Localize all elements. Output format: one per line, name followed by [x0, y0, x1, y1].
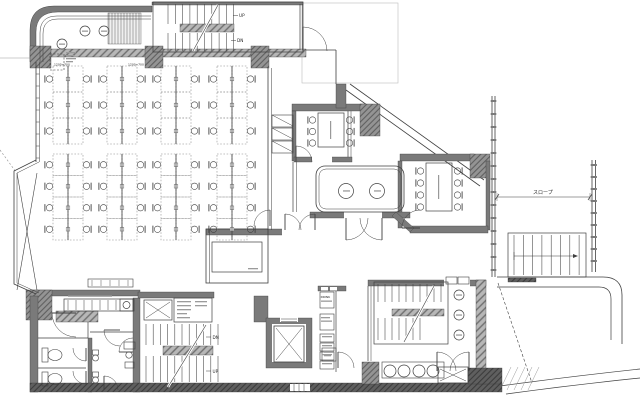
- chair: [247, 162, 253, 168]
- ramp-label: スロープ: [533, 190, 553, 196]
- chair: [454, 180, 460, 186]
- fence-tick: [491, 204, 497, 206]
- floor-plan-drawing: UP DN DN UP DRINK スロープ 1200×700 1200×700: [0, 0, 640, 400]
- micro-text: [321, 317, 330, 318]
- west-bay-wall: [14, 160, 36, 294]
- chair: [137, 102, 143, 108]
- chair: [210, 76, 216, 82]
- door-swing: [73, 371, 86, 384]
- desk: [68, 92, 83, 118]
- arrow-head: [573, 254, 578, 258]
- lounge-bench: [319, 169, 401, 209]
- work-table: [212, 242, 262, 272]
- micro-text: [330, 121, 331, 139]
- toilet-tank: [42, 348, 48, 362]
- chair: [83, 128, 89, 134]
- low-cabinet: [88, 279, 133, 287]
- chair: [210, 183, 216, 189]
- desk: [68, 118, 83, 144]
- desk: [68, 154, 83, 176]
- chair: [83, 183, 89, 189]
- chair: [100, 226, 106, 232]
- paving-hatch: [514, 367, 525, 390]
- chair: [154, 76, 160, 82]
- micro-text: [343, 190, 350, 191]
- desk: [161, 154, 176, 176]
- exterior-wall: [468, 368, 502, 384]
- micro-text: [177, 301, 191, 302]
- fence-tick: [491, 165, 497, 167]
- column: [362, 362, 379, 384]
- desk: [232, 66, 247, 92]
- desk: [53, 154, 68, 176]
- desk: [122, 176, 137, 198]
- fence-tick: [491, 178, 497, 180]
- rail-tick: [591, 212, 597, 214]
- chair: [210, 205, 216, 211]
- site-curve: [506, 378, 640, 394]
- micro-text: [321, 321, 332, 322]
- wall: [133, 298, 140, 392]
- desk: [217, 197, 232, 219]
- chair: [210, 128, 216, 134]
- chair: [100, 205, 106, 211]
- chair: [191, 102, 197, 108]
- micro-text: [321, 301, 332, 302]
- wall: [400, 154, 474, 161]
- rail-tick: [591, 200, 597, 202]
- desk: [68, 219, 83, 241]
- column: [30, 46, 51, 68]
- chair: [191, 205, 197, 211]
- desk: [217, 92, 232, 118]
- paving-hatch: [528, 367, 539, 390]
- desk: [161, 66, 176, 92]
- chair: [309, 140, 315, 146]
- chair: [154, 226, 160, 232]
- stool: [398, 365, 410, 377]
- micro-text: [68, 296, 112, 297]
- desk: [107, 154, 122, 176]
- desk: [161, 176, 176, 198]
- stool: [384, 365, 396, 377]
- chair: [191, 76, 197, 82]
- fence-tick: [491, 152, 497, 154]
- micro-text: [177, 313, 187, 314]
- door-swing: [360, 218, 382, 240]
- urinal: [93, 372, 99, 377]
- desk: [53, 92, 68, 118]
- chair: [100, 102, 106, 108]
- vending-unit: [320, 314, 334, 330]
- site-line: [0, 150, 16, 172]
- chair: [191, 183, 197, 189]
- chair: [46, 205, 52, 211]
- chair: [417, 180, 423, 186]
- desk: [68, 197, 83, 219]
- chair: [154, 183, 160, 189]
- kitchen-counter: [64, 299, 134, 311]
- desk: [217, 154, 232, 176]
- desk: [107, 176, 122, 198]
- urinal: [93, 377, 99, 383]
- wall: [486, 161, 490, 230]
- micro-text: [438, 175, 439, 199]
- desk: [122, 92, 137, 118]
- column: [360, 104, 380, 136]
- desk: [176, 154, 191, 176]
- rooms-layer: [14, 4, 469, 391]
- door-swing: [285, 214, 301, 230]
- desk: [176, 219, 191, 241]
- vending-unit: [320, 361, 334, 369]
- desk-note-right: 1200×700: [128, 63, 144, 67]
- chair: [100, 76, 106, 82]
- micro-text: [322, 336, 332, 337]
- rail-tick: [591, 188, 597, 190]
- rail-tick: [591, 236, 597, 238]
- wall: [152, 2, 303, 5]
- chair: [346, 140, 352, 146]
- chair: [309, 128, 315, 134]
- micro-text: [456, 314, 462, 315]
- desk: [107, 66, 122, 92]
- micro-text: [248, 268, 258, 269]
- exterior-wall: [30, 383, 502, 392]
- desk: [232, 176, 247, 198]
- stair-top-up-label: UP: [239, 13, 245, 18]
- paving-hatch: [507, 367, 518, 390]
- wall-opening: [330, 287, 337, 291]
- column: [145, 46, 163, 68]
- micro-text: [374, 190, 381, 191]
- micro-text: [322, 345, 332, 346]
- desk: [232, 118, 247, 144]
- chair: [210, 162, 216, 168]
- chair: [83, 226, 89, 232]
- fence-tick: [491, 243, 497, 245]
- desk: [232, 92, 247, 118]
- chair: [46, 183, 52, 189]
- chair: [83, 102, 89, 108]
- chair: [137, 205, 143, 211]
- rail-tick: [591, 260, 597, 262]
- chair: [247, 102, 253, 108]
- wall-opening: [312, 156, 332, 163]
- fence-tick: [491, 230, 497, 232]
- desk: [107, 118, 122, 144]
- chair: [137, 162, 143, 168]
- chair: [137, 226, 143, 232]
- door-swing: [303, 27, 327, 51]
- chair: [191, 162, 197, 168]
- desk-note-left: 1200×700: [54, 63, 70, 67]
- chair: [137, 128, 143, 134]
- fixture: [125, 362, 134, 368]
- chair: [46, 76, 52, 82]
- micro-text: [82, 31, 88, 32]
- floor-plan-canvas: UP DN DN UP DRINK スロープ 1200×700 1200×700: [0, 0, 640, 400]
- fence-tick: [491, 217, 497, 219]
- fence-tick: [491, 100, 497, 102]
- plan-line: [272, 128, 293, 139]
- stool: [413, 365, 425, 377]
- vending-unit: [320, 334, 334, 342]
- chair: [454, 192, 460, 198]
- fence-tick: [491, 256, 497, 258]
- micro-text: [177, 317, 190, 318]
- ramp-lower-edge: [497, 287, 611, 340]
- chair: [247, 205, 253, 211]
- stair-break-line: [168, 325, 206, 387]
- wall: [292, 111, 296, 161]
- fence-tick: [491, 191, 497, 193]
- plan-line: [272, 115, 293, 126]
- chair: [46, 128, 52, 134]
- chair: [137, 183, 143, 189]
- canopy-outline: [302, 3, 398, 83]
- wall: [138, 292, 214, 298]
- micro-text: [66, 55, 74, 56]
- chair: [83, 205, 89, 211]
- column: [251, 46, 269, 68]
- desk: [122, 66, 137, 92]
- micro-text: [177, 305, 191, 306]
- chair: [154, 128, 160, 134]
- chair: [154, 205, 160, 211]
- chair: [46, 226, 52, 232]
- fence-tick: [491, 126, 497, 128]
- toilet-bowl: [48, 350, 62, 361]
- micro-text: [66, 52, 76, 53]
- chair: [247, 183, 253, 189]
- fence-tick: [491, 139, 497, 141]
- door-swing: [437, 352, 456, 371]
- chair: [83, 76, 89, 82]
- desk: [217, 176, 232, 198]
- wall: [292, 104, 364, 111]
- plan-line: [272, 141, 293, 152]
- door-swing: [119, 338, 133, 352]
- desk: [161, 219, 176, 241]
- desk: [53, 197, 68, 219]
- micro-text: [322, 363, 332, 364]
- urinal: [93, 350, 99, 355]
- fixture: [126, 352, 132, 358]
- desk: [161, 118, 176, 144]
- desk: [68, 66, 83, 92]
- chair: [154, 162, 160, 168]
- chair: [247, 128, 253, 134]
- micro-text: [195, 305, 207, 306]
- site-curve: [500, 369, 640, 386]
- desk: [122, 219, 137, 241]
- desk: [176, 176, 191, 198]
- wall: [30, 296, 38, 392]
- stair-west-dn-label: DN: [213, 335, 219, 340]
- wall-opening: [321, 287, 328, 291]
- micro-text: [59, 44, 65, 45]
- chair: [417, 168, 423, 174]
- desk: [161, 197, 176, 219]
- door-swing: [104, 330, 120, 346]
- chair: [309, 117, 315, 123]
- door-swing: [338, 352, 354, 368]
- micro-text: [456, 334, 462, 335]
- chair: [210, 102, 216, 108]
- urinal: [93, 355, 99, 361]
- rail-tick: [591, 224, 597, 226]
- micro-text: [101, 31, 107, 32]
- fence-tick: [491, 269, 497, 271]
- desk: [232, 197, 247, 219]
- exterior-curb: [508, 278, 536, 282]
- stair-west-up-label: UP: [213, 369, 219, 374]
- desk: [161, 92, 176, 118]
- desk: [217, 118, 232, 144]
- chair: [247, 76, 253, 82]
- lounge-bench: [316, 166, 404, 212]
- micro-text: [324, 352, 333, 353]
- chair: [417, 204, 423, 210]
- rail-tick: [591, 176, 597, 178]
- desk: [217, 66, 232, 92]
- micro-text: [456, 294, 462, 295]
- desk: [232, 154, 247, 176]
- copy-room: [206, 229, 268, 283]
- desk: [53, 118, 68, 144]
- desk: [122, 118, 137, 144]
- wall-opening: [282, 228, 318, 236]
- rail-tick: [591, 164, 597, 166]
- chair: [191, 226, 197, 232]
- door-swing: [450, 352, 469, 371]
- sink-bowl: [123, 302, 130, 309]
- chair: [83, 162, 89, 168]
- rail-tick: [591, 248, 597, 250]
- chair: [191, 128, 197, 134]
- desk: [68, 176, 83, 198]
- desk: [176, 92, 191, 118]
- door-swing: [73, 348, 86, 361]
- chair: [137, 76, 143, 82]
- desk: [176, 197, 191, 219]
- chair: [346, 117, 352, 123]
- chair: [154, 102, 160, 108]
- desk: [122, 197, 137, 219]
- vending-drink-label: DRINK: [321, 295, 332, 299]
- desk: [176, 66, 191, 92]
- chair: [100, 162, 106, 168]
- wall-opening: [290, 384, 310, 391]
- chair: [346, 128, 352, 134]
- lobby-bench: [108, 13, 141, 44]
- micro-text: [195, 301, 207, 302]
- sink: [120, 299, 133, 311]
- chair: [417, 192, 423, 198]
- wall: [410, 226, 488, 233]
- desk: [107, 219, 122, 241]
- wall: [336, 84, 346, 108]
- stair-top-dn-label: DN: [237, 38, 243, 43]
- micro-text: [66, 58, 76, 59]
- desk: [53, 219, 68, 241]
- desk: [122, 154, 137, 176]
- micro-text: [177, 309, 191, 310]
- chair: [454, 204, 460, 210]
- chair: [100, 128, 106, 134]
- fence-tick: [491, 113, 497, 115]
- walls-layer: [26, 2, 536, 392]
- chair: [46, 162, 52, 168]
- chair: [46, 102, 52, 108]
- chair: [100, 183, 106, 189]
- desk: [107, 197, 122, 219]
- desk: [176, 118, 191, 144]
- door-swing: [346, 218, 368, 240]
- desk: [53, 176, 68, 198]
- desk: [107, 92, 122, 118]
- slope-dashed-line: [498, 283, 532, 383]
- micro-text: [324, 355, 331, 356]
